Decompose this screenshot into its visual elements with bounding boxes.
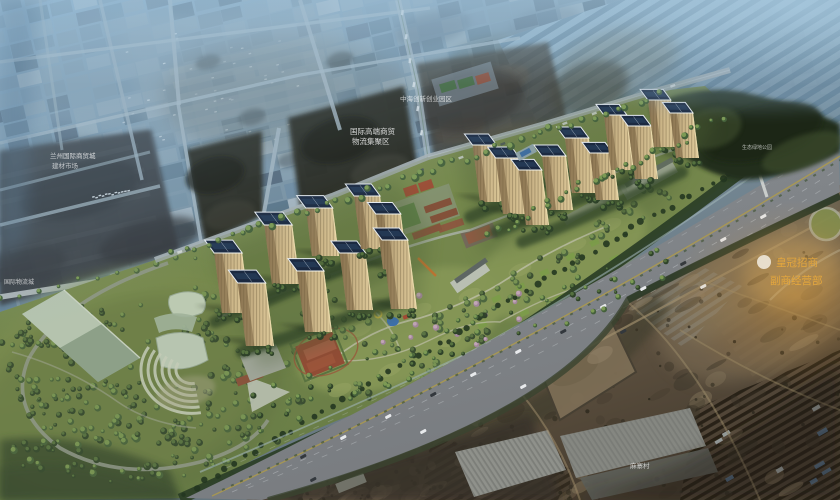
svg-text:兰州国际商贸城: 兰州国际商贸城 bbox=[50, 151, 96, 160]
svg-text:国际物流城: 国际物流城 bbox=[4, 278, 34, 286]
svg-text:中海创新创业园区: 中海创新创业园区 bbox=[400, 94, 453, 103]
svg-text:生态绿地公园: 生态绿地公园 bbox=[742, 144, 772, 151]
svg-text:国际高端商贸: 国际高端商贸 bbox=[350, 126, 395, 136]
svg-text:副商经营部: 副商经营部 bbox=[770, 274, 823, 287]
svg-text:皇冠招商: 皇冠招商 bbox=[776, 256, 818, 269]
svg-text:物流集聚区: 物流集聚区 bbox=[352, 136, 390, 146]
svg-text:建材市场: 建材市场 bbox=[52, 161, 79, 170]
svg-text:麻寨村: 麻寨村 bbox=[630, 461, 650, 470]
